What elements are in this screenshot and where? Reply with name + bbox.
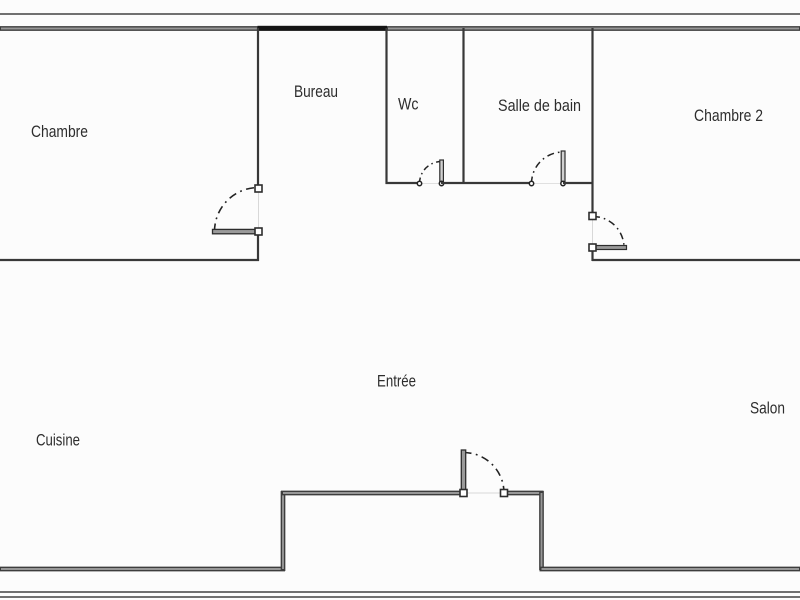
svg-text:Chambre: Chambre [31, 122, 88, 141]
svg-text:Bureau: Bureau [294, 82, 338, 101]
svg-text:Salon: Salon [750, 399, 785, 418]
svg-text:Entrée: Entrée [377, 372, 416, 391]
svg-text:Chambre 2: Chambre 2 [694, 106, 763, 125]
svg-text:Cuisine: Cuisine [36, 431, 80, 450]
svg-text:Wc: Wc [398, 95, 419, 114]
svg-text:Salle de bain: Salle de bain [498, 96, 581, 115]
